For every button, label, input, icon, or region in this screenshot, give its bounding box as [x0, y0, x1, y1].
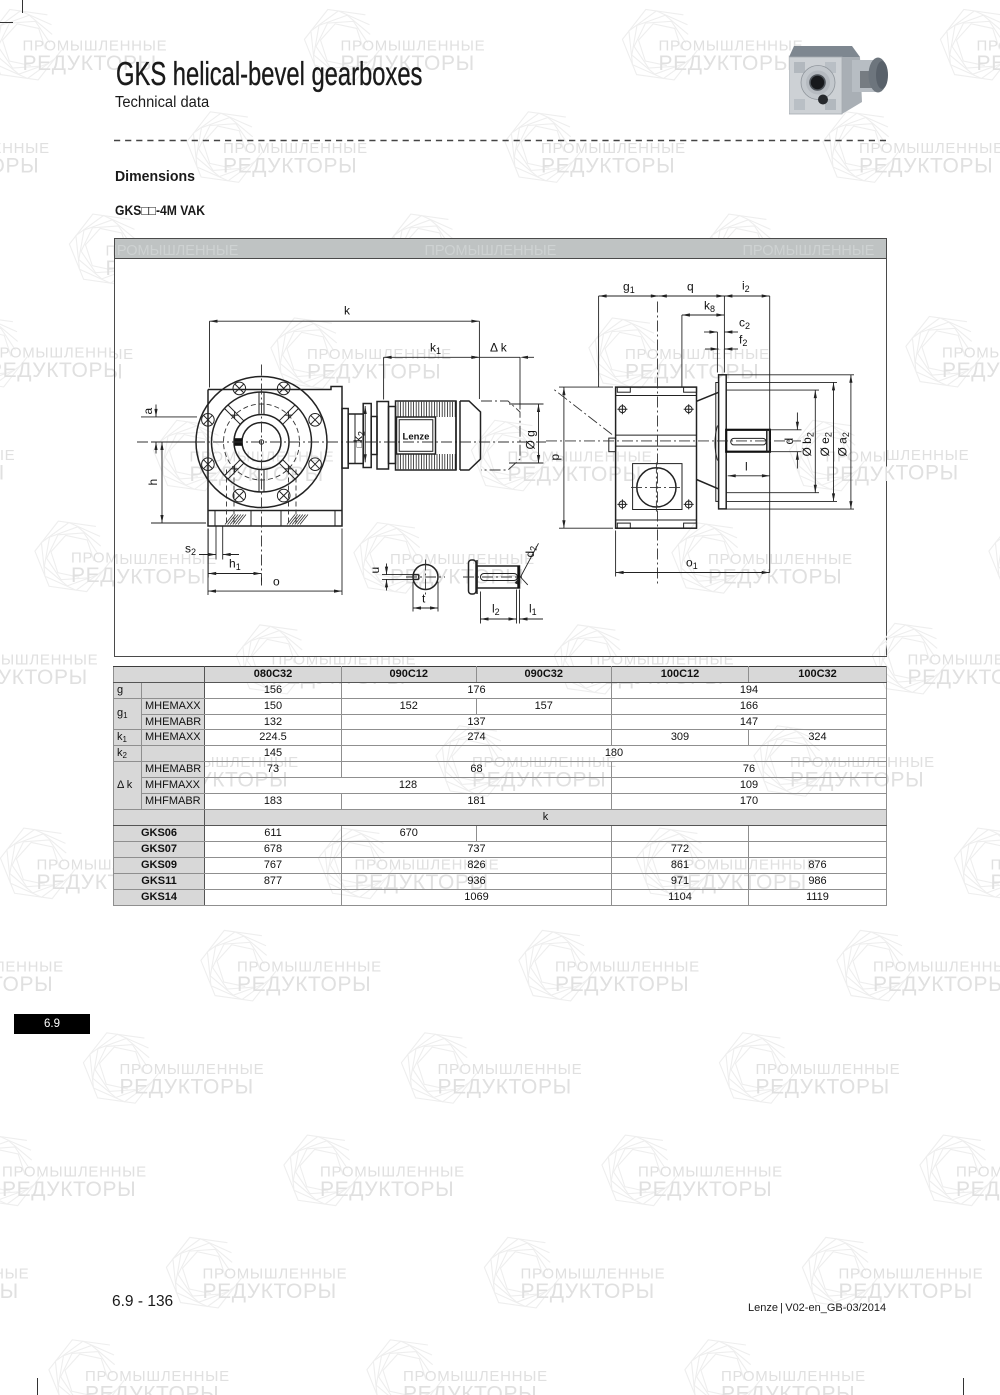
svg-text:РЕДУКТОРЫ: РЕДУКТОРЫ — [0, 155, 39, 178]
svg-text:o1: o1 — [686, 555, 698, 571]
svg-text:РЕДУКТОРЫ: РЕДУКТОРЫ — [85, 1383, 219, 1395]
svg-text:□k2: □k2 — [351, 431, 367, 447]
svg-text:РЕДУКТОРЫ: РЕДУКТОРЫ — [438, 1076, 572, 1099]
svg-text:РЕДУКТОРЫ: РЕДУКТОРЫ — [625, 360, 759, 383]
svg-text:u: u — [368, 566, 382, 573]
svg-text:l: l — [745, 459, 748, 473]
svg-text:Lenze: Lenze — [402, 431, 429, 442]
svg-text:k1: k1 — [430, 340, 441, 356]
svg-text:Δ k: Δ k — [490, 340, 508, 354]
svg-text:РЕДУКТОРЫ: РЕДУКТОРЫ — [873, 973, 1000, 996]
svg-text:f2: f2 — [739, 332, 747, 348]
svg-text:РЕДУКТОРЫ: РЕДУКТОРЫ — [507, 463, 641, 486]
svg-text:l2: l2 — [492, 601, 500, 617]
svg-text:q: q — [687, 279, 694, 293]
svg-text:РЕДУКТОРЫ: РЕДУКТОРЫ — [115, 360, 123, 383]
svg-text:РЕДУКТОРЫ: РЕДУКТОРЫ — [659, 52, 793, 75]
svg-text:РЕДУКТОРЫ: РЕДУКТОРЫ — [908, 666, 1000, 689]
svg-text:РЕДУКТОРЫ: РЕДУКТОРЫ — [555, 973, 689, 996]
svg-text:РЕДУКТОРЫ: РЕДУКТОРЫ — [859, 155, 993, 178]
svg-text:РЕДУКТОРЫ: РЕДУКТОРЫ — [756, 1076, 890, 1099]
svg-text:d: d — [782, 437, 796, 444]
svg-text:l1: l1 — [529, 601, 537, 617]
svg-text:РЕДУКТОРЫ: РЕДУКТОРЫ — [0, 1280, 19, 1303]
svg-text:a: a — [141, 407, 155, 414]
svg-text:РЕДУКТОРЫ: РЕДУКТОРЫ — [541, 155, 675, 178]
svg-text:РЕДУКТОРЫ: РЕДУКТОРЫ — [320, 1178, 454, 1201]
svg-text:РЕДУКТОРЫ: РЕДУКТОРЫ — [307, 360, 441, 383]
svg-text:Ø g: Ø g — [523, 430, 537, 449]
svg-text:РЕДУКТОРЫ: РЕДУКТОРЫ — [120, 1076, 254, 1099]
svg-text:РЕДУКТОРЫ: РЕДУКТОРЫ — [0, 973, 53, 996]
svg-text:РЕДУКТОРЫ: РЕДУКТОРЫ — [0, 462, 5, 485]
svg-text:Ø a2: Ø a2 — [835, 432, 851, 456]
svg-text:РЕДУКТОРЫ: РЕДУКТОРЫ — [721, 1383, 855, 1395]
svg-text:ПРОМЫШЛЕННЫЕ: ПРОМЫШЛЕННЫЕ — [590, 653, 735, 656]
svg-text:c2: c2 — [739, 315, 750, 331]
svg-text:o: o — [273, 574, 280, 588]
svg-text:Ø b2: Ø b2 — [800, 432, 816, 456]
svg-text:РЕДУКТОРЫ: РЕДУКТОРЫ — [991, 871, 1000, 894]
svg-text:РЕДУКТОРЫ: РЕДУКТОРЫ — [638, 1178, 772, 1201]
svg-text:h: h — [146, 478, 160, 485]
svg-text:РЕДУКТОРЫ: РЕДУКТОРЫ — [237, 973, 371, 996]
svg-text:РЕДУКТОРЫ: РЕДУКТОРЫ — [115, 565, 206, 588]
svg-text:РЕДУКТОРЫ: РЕДУКТОРЫ — [203, 1280, 337, 1303]
svg-text:РЕДУКТОРЫ: РЕДУКТОРЫ — [0, 359, 122, 382]
svg-text:РЕДУКТОРЫ: РЕДУКТОРЫ — [956, 1178, 1000, 1201]
svg-text:РЕДУКТОРЫ: РЕДУКТОРЫ — [0, 666, 88, 689]
svg-text:s2: s2 — [185, 541, 196, 557]
svg-text:h1: h1 — [229, 556, 241, 572]
svg-text:Ø e2: Ø e2 — [818, 432, 834, 456]
svg-text:РЕДУКТОРЫ: РЕДУКТОРЫ — [708, 565, 842, 588]
svg-text:k: k — [344, 303, 351, 317]
svg-text:k8: k8 — [704, 298, 715, 314]
svg-text:РЕДУКТОРЫ: РЕДУКТОРЫ — [521, 1280, 655, 1303]
svg-text:p: p — [548, 453, 562, 460]
svg-text:РЕДУКТОРЫ: РЕДУКТОРЫ — [223, 155, 357, 178]
svg-text:ПРОМЫШЛЕННЫЕ: ПРОМЫШЛЕННЫЕ — [272, 653, 417, 656]
svg-text:РЕДУКТОРЫ: РЕДУКТОРЫ — [403, 1383, 537, 1395]
svg-text:РЕДУКТОРЫ: РЕДУКТОРЫ — [2, 1178, 136, 1201]
svg-text:РЕДУКТОРЫ: РЕДУКТОРЫ — [839, 1280, 973, 1303]
svg-text:i2: i2 — [742, 278, 750, 294]
svg-text:РЕДУКТОРЫ: РЕДУКТОРЫ — [977, 52, 1000, 75]
svg-text:РЕДУКТОРЫ: РЕДУКТОРЫ — [942, 359, 1000, 382]
svg-text:РЕДУКТОРЫ: РЕДУКТОРЫ — [825, 463, 887, 486]
svg-text:d2: d2 — [523, 545, 539, 557]
svg-text:g1: g1 — [623, 279, 635, 295]
